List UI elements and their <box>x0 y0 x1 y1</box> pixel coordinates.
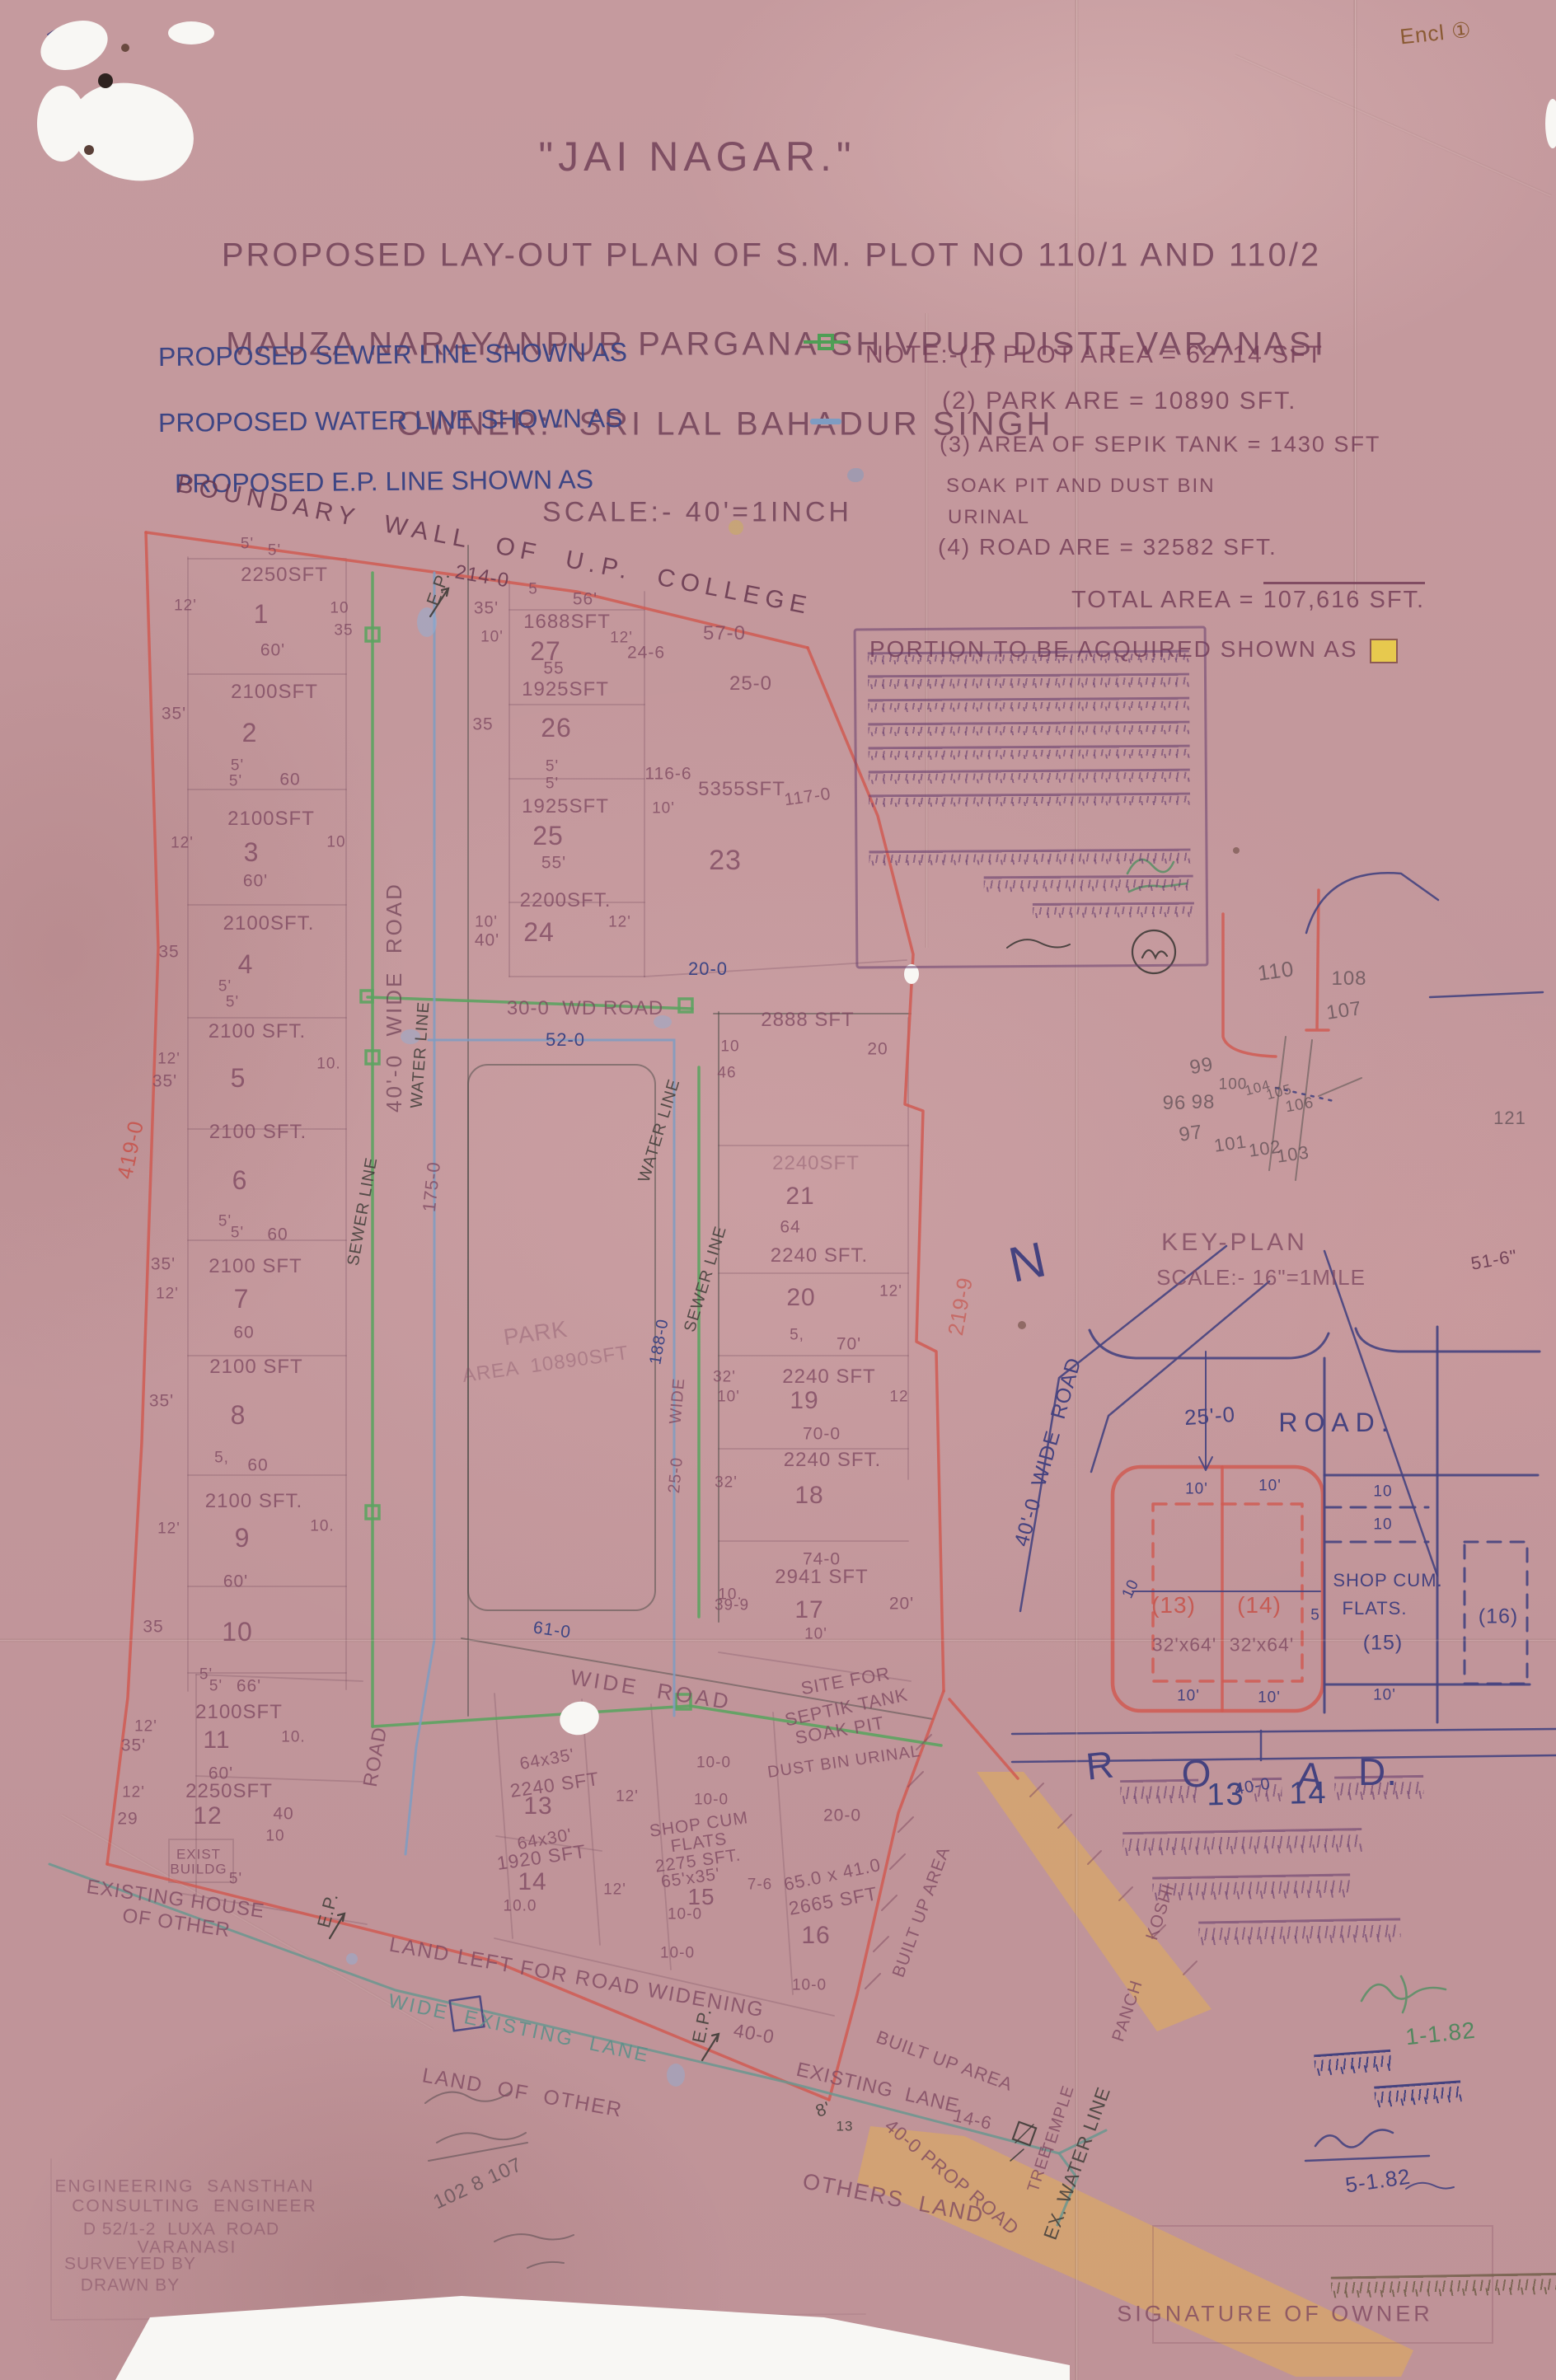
plan-label: BUILDG <box>170 1862 227 1876</box>
plan-label: 32' <box>715 1475 738 1491</box>
plan-label: 2240 SFT. <box>784 1450 881 1470</box>
plan-label: 5355SFT <box>698 780 785 799</box>
plan-label: (16) <box>1479 1607 1518 1628</box>
plan-label: 2250SFT <box>185 1782 273 1801</box>
plan-label: WIDE EXISTING LANE <box>387 1992 652 2067</box>
plan-label: 116-6 <box>644 766 691 783</box>
plan-label: SEWER LINE <box>682 1224 729 1333</box>
plan-label: 99 <box>1188 1055 1215 1079</box>
plan-label: 97 <box>1178 1122 1204 1145</box>
plan-label: 14 <box>518 1870 546 1895</box>
plan-label: 40' <box>475 932 499 949</box>
plan-label: 2250SFT <box>241 565 328 585</box>
plan-label: 60 <box>233 1324 254 1342</box>
plan-label: 10' <box>652 801 675 817</box>
plan-label: 12' <box>174 598 197 614</box>
plan-label: ENGINEERING SANSTHAN <box>54 2178 314 2195</box>
plan-label: 19 <box>790 1389 818 1413</box>
plan-label: 12' <box>157 1052 180 1067</box>
plan-label: 106 <box>1284 1095 1315 1116</box>
plan-label: 2100 SFT <box>209 1257 302 1277</box>
plan-label: A <box>1296 1755 1325 1796</box>
plan-label: 57-0 <box>703 624 746 644</box>
plan-label: 8' <box>813 2099 833 2120</box>
plan-label: 12' <box>616 1789 639 1805</box>
plan-label: 5 <box>231 1065 246 1091</box>
plan-label: D. <box>1358 1753 1398 1791</box>
plan-label: 12' <box>608 915 631 930</box>
plan-label: 20-0 <box>823 1807 861 1825</box>
plan-label: 64 <box>780 1219 800 1236</box>
plan-label: 12 <box>889 1389 908 1405</box>
plan-label: 6 <box>232 1167 248 1193</box>
plan-label: 40-0 <box>1234 1775 1272 1797</box>
plan-label: R <box>1085 1745 1117 1785</box>
plan-label: 2200SFT. <box>520 891 612 911</box>
plan-label: 10.0 <box>504 1899 537 1914</box>
scanned-layout-plan-sheet: "JAI NAGAR." PROPOSED LAY-OUT PLAN OF S.… <box>0 0 1556 2380</box>
plan-label: 121 <box>1493 1109 1526 1127</box>
plan-label: 13 <box>837 2120 854 2134</box>
plan-label: 2 <box>242 719 258 746</box>
plan-label: 7-6 <box>748 1877 772 1893</box>
plan-label: 10 <box>222 1619 253 1645</box>
plan-label: EXIST <box>176 1848 221 1862</box>
plan-label: 1925SFT <box>522 680 609 700</box>
plan-label: 5' <box>226 995 239 1010</box>
plan-label: 56' <box>573 591 598 608</box>
plan-label: 17 <box>794 1598 823 1623</box>
plan-label: 2100SFT <box>227 809 315 829</box>
plan-label: 10 <box>1373 1484 1392 1500</box>
plan-label: 110 <box>1256 958 1296 984</box>
plan-label: 23 <box>709 846 742 874</box>
plan-label: 2941 SFT <box>775 1567 868 1587</box>
plan-label: ROAD. <box>1278 1409 1394 1436</box>
plan-label: 20-0 <box>688 960 728 978</box>
plan-label: 10' <box>717 1389 740 1405</box>
plan-label: 60 <box>247 1457 268 1474</box>
plan-label: 35' <box>474 600 499 617</box>
plan-label: 5, <box>790 1328 804 1343</box>
plan-label: 35' <box>149 1393 174 1410</box>
plan-label: 214-0 <box>453 562 511 591</box>
plan-label: PARK <box>502 1318 569 1350</box>
plan-label: 2100SFT. <box>223 914 315 934</box>
plan-label: 5' <box>231 758 244 774</box>
plan-label: 10-0 <box>694 1792 729 1808</box>
plan-label: 60' <box>260 642 285 659</box>
plan-label: 9 <box>235 1525 251 1551</box>
plan-label: 55 <box>543 660 564 677</box>
plan-label: 2100 SFT. <box>209 1022 306 1042</box>
plan-label: 35 <box>334 623 353 639</box>
plan-label: 46 <box>717 1066 736 1081</box>
plan-label: 10 <box>720 1039 739 1055</box>
plan-label: 25'-0 <box>1183 1403 1236 1428</box>
plan-label: 117-0 <box>783 785 832 809</box>
plan-label: 8 <box>231 1402 246 1428</box>
plan-label: 40'-0 WIDE ROAD <box>383 882 405 1113</box>
plan-label: 12' <box>134 1719 157 1735</box>
plan-label: 61-0 <box>532 1619 573 1641</box>
plan-label: 2240 SFT <box>782 1367 875 1387</box>
plan-label: 12 <box>193 1804 222 1829</box>
plan-label: 10-0 <box>660 1946 695 1961</box>
plan-label: KEY-PLAN <box>1161 1230 1308 1255</box>
plan-label: 10. <box>316 1056 340 1072</box>
plan-label: 1-1.82 <box>1404 2019 1477 2050</box>
plan-label: 12' <box>603 1882 626 1898</box>
plan-label: CONSULTING ENGINEER <box>72 2198 316 2215</box>
plan-label: 2240 SFT. <box>771 1246 868 1266</box>
plan-label: 32'x64' <box>1230 1636 1294 1655</box>
plan-label: 103 <box>1276 1143 1310 1165</box>
plan-label: DRAWN BY <box>81 2277 180 2294</box>
plan-label: 35 <box>143 1619 163 1636</box>
plan-label: 5' <box>229 1872 242 1887</box>
plan-label: 5, <box>214 1450 229 1466</box>
plan-label: 2240 SFT <box>509 1769 600 1801</box>
plan-label: 52-0 <box>546 1031 585 1049</box>
plan-label: 10 <box>326 835 345 850</box>
plan-label: 5' <box>231 1225 244 1241</box>
plan-label: 96 <box>1163 1094 1187 1113</box>
plan-label: 64x35' <box>518 1746 576 1773</box>
plan-label: 12' <box>171 836 194 851</box>
plan-label: 12' <box>879 1284 902 1300</box>
plan-label: 5' <box>218 979 232 995</box>
plan-label: 12' <box>157 1521 180 1537</box>
plan-label: SHOP CUM. <box>1333 1572 1442 1590</box>
plan-label: 4 <box>238 951 254 977</box>
plan-label: 10 <box>330 601 349 616</box>
plan-label: 10' <box>1373 1688 1396 1703</box>
plan-label: 20' <box>889 1595 914 1613</box>
plan-label: 25-0 <box>729 674 772 694</box>
plan-label: 35 <box>158 944 179 961</box>
plan-label: 10. <box>281 1730 305 1745</box>
plan-label: 35 <box>472 716 493 733</box>
plan-label: 60 <box>279 771 300 789</box>
plan-label: 10' <box>480 630 504 645</box>
plan-label: WIDE ROAD <box>569 1666 733 1713</box>
plan-label: 10' <box>1177 1689 1200 1704</box>
plan-label: 70' <box>837 1336 861 1353</box>
plan-label: 5' <box>546 776 559 792</box>
plan-label: 188-0 <box>647 1318 671 1366</box>
plan-label: 21 <box>785 1184 814 1209</box>
plan-label: 101 <box>1213 1132 1248 1155</box>
plan-label: 29 <box>117 1811 138 1828</box>
plan-label: 2100 SFT. <box>209 1122 307 1142</box>
plan-label: 18 <box>794 1483 823 1508</box>
plan-label: 10' <box>475 915 498 930</box>
plan-label: 10' <box>804 1627 827 1642</box>
plan-label: E.P. <box>424 569 452 608</box>
plan-label: 60' <box>243 873 268 890</box>
plan-label: 35' <box>162 705 186 723</box>
plan-label: 2100 SFT <box>209 1357 302 1377</box>
plan-label: 40-0 <box>732 2021 776 2046</box>
plan-label: (13) <box>1151 1594 1196 1617</box>
plan-label: 98 <box>1192 1093 1216 1113</box>
plan-label: BUILT UP AREA <box>890 1844 954 1979</box>
plan-label: 60 <box>267 1226 288 1244</box>
plan-label: PANCH <box>1109 1978 1146 2044</box>
plan-label: DUST BIN URINAL <box>766 1743 921 1781</box>
plan-label: 2888 SFT <box>761 1010 854 1030</box>
plan-label: D 52/1-2 LUXA ROAD <box>83 2221 279 2238</box>
plan-label: 219-9 <box>944 1276 976 1338</box>
plan-label: 24 <box>523 919 555 945</box>
plan-label: (14) <box>1237 1594 1282 1617</box>
plan-label: AREA 10890SFT <box>462 1343 630 1386</box>
plan-label: 32'x64' <box>1152 1636 1216 1655</box>
plan-label: 35' <box>121 1737 146 1755</box>
plan-label: 20 <box>867 1041 888 1058</box>
plan-label: 26 <box>541 714 572 741</box>
plan-label: 2240SFT <box>772 1154 860 1174</box>
plan-label: 175-0 <box>420 1160 443 1212</box>
plan-label: 16 <box>801 1923 830 1948</box>
plan-label: VARANASI <box>138 2239 237 2256</box>
plan-label: 10. <box>310 1519 334 1534</box>
plan-label: 25-0 <box>666 1456 686 1494</box>
plan-label: 66' <box>237 1678 261 1695</box>
plan-label: 1 <box>254 601 269 627</box>
plan-label: 10-0 <box>696 1755 731 1771</box>
plan-label: SCALE:- 16"=1MILE <box>1156 1267 1366 1288</box>
plan-label: 40 <box>273 1806 293 1823</box>
plan-label: 40'-0 WIDE ROAD <box>1011 1356 1085 1549</box>
plan-label: E.P. <box>315 1891 341 1930</box>
plan-label: 24-6 <box>627 644 665 662</box>
plan-label: SURVEYED BY <box>64 2256 196 2273</box>
plan-label: LAND OF OTHER <box>420 2065 624 2120</box>
plan-label: 70-0 <box>803 1426 841 1443</box>
plan-label: 35' <box>151 1256 176 1273</box>
plan-label: 10' <box>1258 1478 1282 1494</box>
plan-label: O <box>1182 1755 1212 1792</box>
plan-label: WATER LINE <box>408 1000 432 1108</box>
plan-label: KOSHI <box>1143 1881 1178 1942</box>
plan-label: 30-0 WD ROAD <box>507 999 663 1019</box>
plan-label: (15) <box>1363 1633 1403 1654</box>
plan-label: 11 <box>203 1728 230 1753</box>
plan-label: 10-0 <box>668 1907 702 1923</box>
plan-label: 55' <box>541 855 566 872</box>
plan-label: 51-6" <box>1469 1247 1519 1273</box>
plan-label: 5' <box>268 543 281 559</box>
plan-label: 60' <box>223 1573 248 1591</box>
plan-label: 10-0 <box>792 1978 827 1993</box>
plan-label: 1688SFT <box>523 612 611 632</box>
plan-label: 35' <box>152 1073 177 1090</box>
plan-label: 108 <box>1331 969 1366 989</box>
plan-label: 5' <box>209 1679 223 1694</box>
plan-label: WATER LINE <box>635 1077 682 1184</box>
plan-label: WIDE <box>668 1377 688 1425</box>
plan-label: 25 <box>532 822 564 849</box>
plan-label: 13 <box>523 1794 552 1819</box>
plan-label: 10 <box>1120 1577 1142 1600</box>
plan-label: 107 <box>1325 999 1363 1024</box>
plan-label: 10' <box>1258 1690 1281 1706</box>
plan-label: 14-6 <box>951 2106 994 2133</box>
plan-label: 32' <box>713 1370 736 1385</box>
plan-label: 10' <box>1185 1482 1208 1497</box>
plan-label: 39-9 <box>715 1598 749 1614</box>
plan-label: 12' <box>156 1286 179 1302</box>
plan-label: SEWER LINE <box>345 1156 381 1267</box>
plan-label: 3 <box>244 839 260 865</box>
plan-label: 102 8 107 <box>430 2155 525 2214</box>
plan-label: ROAD <box>361 1726 391 1788</box>
plan-label: 5' <box>218 1214 232 1230</box>
plan-label: 2100SFT <box>231 682 318 702</box>
plan-label: 7 <box>234 1286 250 1312</box>
plan-label: 5 <box>528 582 538 597</box>
plan-label: E.P. <box>690 2007 715 2045</box>
plan-label: N <box>1005 1235 1051 1291</box>
plan-label: SIGNATURE OF OWNER <box>1117 2303 1433 2326</box>
plan-label: 10 <box>1373 1517 1392 1533</box>
plan-label: 5 <box>1310 1608 1320 1623</box>
plan-label: 2100SFT <box>195 1703 283 1722</box>
plan-label: 1925SFT <box>522 797 609 817</box>
plan-label: Encl ① <box>1399 19 1472 48</box>
plan-annotation-layer: BOUNDARY WALL OF U.P. COLLEGE214-0E.P.En… <box>0 0 1556 2380</box>
plan-label: FLATS. <box>1343 1600 1408 1618</box>
plan-label: 5' <box>229 774 242 789</box>
plan-label: 5' <box>546 759 559 775</box>
plan-label: 5' <box>241 536 254 552</box>
plan-label: 12' <box>122 1785 145 1801</box>
plan-label: 419-0 <box>114 1118 147 1180</box>
plan-label: 10 <box>265 1829 284 1844</box>
plan-label: 20 <box>786 1286 815 1310</box>
plan-label: 5-1.82 <box>1344 2166 1413 2196</box>
plan-label: 2100 SFT. <box>205 1492 302 1511</box>
